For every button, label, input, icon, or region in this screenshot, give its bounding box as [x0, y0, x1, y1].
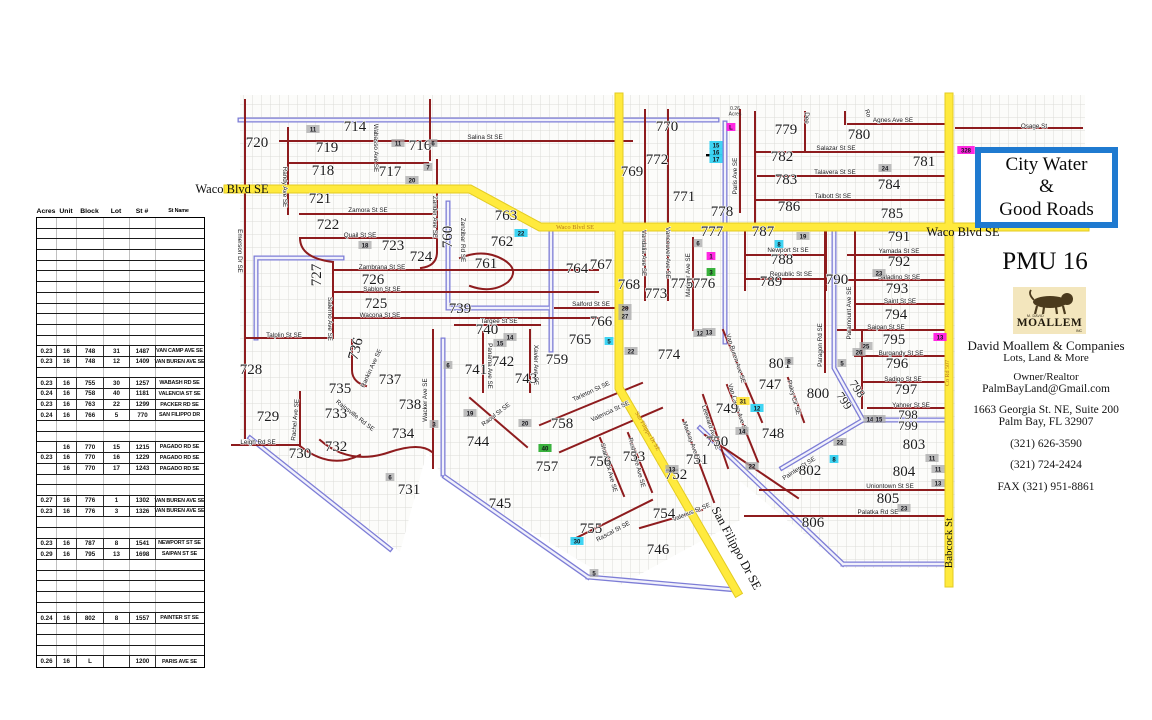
- table-row: [37, 314, 204, 325]
- block-number: 764: [566, 261, 589, 277]
- banner-line2: &: [1039, 176, 1054, 198]
- block-number: 721: [309, 191, 332, 207]
- table-cell: [130, 517, 156, 527]
- table-cell: 0.23: [37, 539, 57, 549]
- table-cell: [156, 528, 203, 538]
- table-cell: [156, 635, 203, 645]
- table-cell: [77, 517, 104, 527]
- table-cell: [104, 368, 130, 378]
- table-row: 0.231677631326VAN BUREN AVE SE: [37, 507, 204, 518]
- lot-table-header: AcresUnitBlockLotSt #St Name: [36, 205, 205, 217]
- email-address: PalmBayLand@Gmail.com: [962, 383, 1130, 395]
- svg-text:30: 30: [574, 540, 581, 546]
- table-cell: 1243: [130, 464, 156, 474]
- table-cell: [130, 560, 156, 570]
- street-label: Zanzibar Rd SE: [459, 218, 466, 262]
- street-label: Paramount Ave SE: [846, 286, 853, 339]
- svg-text:26: 26: [856, 351, 863, 357]
- table-cell: [130, 325, 156, 335]
- table-cell: [77, 646, 104, 656]
- lot-marker: 19: [463, 409, 476, 418]
- lot-marker: 13: [702, 328, 715, 337]
- table-cell: 16: [57, 442, 77, 452]
- block-number: 774: [658, 347, 681, 363]
- table-row: [37, 432, 204, 443]
- lot-marker: 8: [775, 240, 784, 249]
- table-cell: [130, 485, 156, 495]
- lot-marker: 17: [709, 155, 722, 164]
- table-cell: [37, 635, 57, 645]
- table-cell: [156, 475, 203, 485]
- lot-marker: 28: [618, 304, 631, 313]
- table-cell: [156, 261, 203, 271]
- block-number: 804: [893, 464, 916, 480]
- block-number: 802: [799, 463, 822, 479]
- block-number: 806: [802, 515, 825, 531]
- table-row: 16770151215PAGADO RD SE: [37, 442, 204, 453]
- table-cell: SAIPAN ST SE: [156, 549, 203, 559]
- table-cell: 795: [77, 549, 104, 559]
- table-cell: [77, 229, 104, 239]
- table-cell: [104, 282, 130, 292]
- table-cell: [57, 421, 77, 431]
- block-number: 788: [771, 252, 794, 268]
- lot-marker: 11: [931, 465, 944, 474]
- table-row: [37, 229, 204, 240]
- table-cell: 0.24: [37, 389, 57, 399]
- phone-number-1: (321) 626-3590: [962, 438, 1130, 450]
- block-number: 740: [476, 322, 499, 338]
- lot-marker: 7: [424, 163, 433, 172]
- block-number: 753: [623, 449, 646, 465]
- table-cell: [156, 250, 203, 260]
- table-cell: [77, 571, 104, 581]
- table-cell: 0.26: [37, 656, 57, 667]
- table-cell: 0.23: [37, 400, 57, 410]
- block-number: 761: [475, 256, 498, 272]
- table-cell: [130, 229, 156, 239]
- street-label: Leigh Rd SE: [240, 439, 275, 446]
- table-cell: 16: [57, 464, 77, 474]
- lot-marker: 3: [707, 268, 716, 277]
- city-state-zip: Palm Bay, FL 32907: [962, 416, 1130, 428]
- table-cell: 5: [104, 410, 130, 420]
- lot-marker: 1: [707, 252, 716, 261]
- svg-text:11: 11: [395, 142, 402, 148]
- block-number: 776: [693, 276, 716, 292]
- table-cell: 787: [77, 539, 104, 549]
- table-row: 0.231678781541NEWPORT ST SE: [37, 539, 204, 550]
- table-cell: 16: [57, 410, 77, 420]
- lot-marker: 5: [590, 569, 599, 578]
- table-cell: [77, 314, 104, 324]
- table-cell: 770: [77, 464, 104, 474]
- table-row: [37, 218, 204, 229]
- city-water-banner: City Water & Good Roads: [975, 147, 1118, 228]
- table-cell: [77, 271, 104, 281]
- table-cell: [156, 592, 203, 602]
- svg-text:20: 20: [409, 179, 416, 185]
- table-cell: [130, 239, 156, 249]
- table-cell: [156, 646, 203, 656]
- table-cell: [37, 592, 57, 602]
- table-cell: [37, 517, 57, 527]
- table-cell: [156, 560, 203, 570]
- street-label: Paris Ave SE: [732, 158, 739, 195]
- block-number: 729: [257, 409, 280, 425]
- block-number: 785: [881, 206, 904, 222]
- lot-marker: L: [727, 123, 736, 132]
- table-cell: [104, 432, 130, 442]
- table-cell: 16: [57, 400, 77, 410]
- table-cell: [130, 592, 156, 602]
- table-cell: 16: [104, 453, 130, 463]
- table-cell: [77, 475, 104, 485]
- table-row: [37, 282, 204, 293]
- street-label: Salford St SE: [572, 301, 610, 308]
- block-number: 762: [491, 234, 514, 250]
- lot-marker: 328: [957, 146, 974, 155]
- table-cell: VAN CAMP AVE SE: [156, 346, 203, 356]
- table-cell: [156, 603, 203, 613]
- street-label: Wacker Ave SE: [422, 378, 429, 421]
- svg-text:22: 22: [837, 441, 844, 447]
- table-cell: [77, 592, 104, 602]
- table-row: [37, 421, 204, 432]
- table-cell: [104, 646, 130, 656]
- table-cell: 16: [57, 613, 77, 623]
- table-cell: [57, 571, 77, 581]
- street-label: Talplin St SE: [266, 332, 302, 339]
- block-number: 786: [778, 199, 801, 215]
- table-cell: [37, 218, 57, 228]
- table-cell: [156, 218, 203, 228]
- street-label: Uniontown St SE: [866, 483, 914, 490]
- block-number: 742: [492, 354, 515, 370]
- lot-marker: 22: [833, 438, 846, 447]
- table-cell: [57, 293, 77, 303]
- block-number: 770: [656, 119, 679, 135]
- lot-marker: 40: [538, 444, 551, 453]
- table-cell: [104, 271, 130, 281]
- table-cell: [57, 368, 77, 378]
- block-number: 766: [590, 314, 613, 330]
- table-cell: [156, 336, 203, 346]
- street-label: Osage St: [1021, 123, 1048, 130]
- table-cell: 0.23: [37, 346, 57, 356]
- block-number: 771: [673, 189, 696, 205]
- table-row: [37, 624, 204, 635]
- table-row: 16770171243PAGADO RD SE: [37, 464, 204, 475]
- table-cell: 16: [57, 453, 77, 463]
- table-cell: [77, 581, 104, 591]
- block-number: 733: [325, 406, 348, 422]
- table-cell: 763: [77, 400, 104, 410]
- table-cell: [156, 517, 203, 527]
- table-row: [37, 603, 204, 614]
- lot-marker: 11: [391, 139, 404, 148]
- lot-marker: 5: [605, 337, 614, 346]
- block-number: 720: [246, 135, 269, 151]
- table-cell: [104, 571, 130, 581]
- svg-text:40: 40: [542, 447, 549, 453]
- table-cell: [104, 239, 130, 249]
- table-row: [37, 304, 204, 315]
- street-label: Zambrana St SE: [359, 264, 406, 271]
- table-row: [37, 581, 204, 592]
- table-cell: [130, 475, 156, 485]
- table-cell: [37, 325, 57, 335]
- table-cell: [37, 271, 57, 281]
- table-cell: 1257: [130, 378, 156, 388]
- street-label: Zamora St SE: [348, 207, 388, 214]
- street-label: Randy Ave SE: [281, 167, 288, 208]
- table-cell: [104, 250, 130, 260]
- table-cell: [37, 293, 57, 303]
- block-number: 744: [467, 434, 490, 450]
- table-cell: [37, 368, 57, 378]
- block-number: 758: [551, 416, 574, 432]
- block-number: 765: [569, 332, 592, 348]
- table-cell: [130, 581, 156, 591]
- table-cell: PARIS AVE SE: [156, 656, 203, 667]
- table-cell: 1326: [130, 507, 156, 517]
- table-cell: [130, 646, 156, 656]
- table-cell: 13: [104, 549, 130, 559]
- table-cell: [104, 293, 130, 303]
- road-label: Co Rd 507: [945, 360, 951, 386]
- road-label: Waco Blvd SE: [556, 224, 594, 231]
- svg-text:27: 27: [622, 315, 629, 321]
- table-cell: 1698: [130, 549, 156, 559]
- block-number: 718: [312, 163, 335, 179]
- table-cell: [77, 624, 104, 634]
- table-cell: [77, 368, 104, 378]
- table-cell: 16: [57, 389, 77, 399]
- lot-marker: 8: [785, 357, 794, 366]
- block-number: 790: [826, 272, 849, 288]
- table-cell: [37, 250, 57, 260]
- table-cell: [104, 560, 130, 570]
- table-cell: [57, 282, 77, 292]
- column-header: Unit: [56, 208, 76, 215]
- table-cell: [130, 368, 156, 378]
- street-label: Saint St SE: [884, 298, 916, 305]
- block-number: 784: [878, 177, 901, 193]
- column-header: St #: [129, 208, 155, 215]
- svg-text:20: 20: [522, 422, 529, 428]
- table-row: [37, 271, 204, 282]
- table-cell: [77, 218, 104, 228]
- table-cell: WABASH RD SE: [156, 378, 203, 388]
- block-number: 768: [618, 277, 641, 293]
- table-cell: [156, 571, 203, 581]
- table-cell: [130, 282, 156, 292]
- table-cell: [77, 432, 104, 442]
- table-cell: [57, 336, 77, 346]
- logo-inc-text: INC: [1076, 329, 1082, 333]
- lot-marker: 22: [514, 229, 527, 238]
- block-number: 717: [379, 164, 402, 180]
- svg-text:15: 15: [497, 342, 504, 348]
- table-cell: [37, 528, 57, 538]
- table-cell: 16: [57, 346, 77, 356]
- table-cell: [37, 432, 57, 442]
- table-row: 0.2316748311487VAN CAMP AVE SE: [37, 346, 204, 357]
- table-cell: [104, 314, 130, 324]
- table-cell: 16: [57, 496, 77, 506]
- table-row: [37, 261, 204, 272]
- lot-marker: 27: [618, 312, 631, 321]
- svg-text:18: 18: [362, 244, 369, 250]
- table-cell: [37, 560, 57, 570]
- lot-marker: 3: [430, 420, 439, 429]
- table-cell: [57, 239, 77, 249]
- table-cell: [130, 314, 156, 324]
- table-cell: [104, 261, 130, 271]
- table-cell: PAGADO RD SE: [156, 442, 203, 452]
- table-cell: [77, 325, 104, 335]
- table-cell: [37, 624, 57, 634]
- block-number: 760: [440, 226, 456, 249]
- street-label: Dee: [803, 112, 810, 124]
- table-cell: [57, 314, 77, 324]
- table-cell: [57, 592, 77, 602]
- table-cell: [156, 432, 203, 442]
- svg-text:15: 15: [876, 418, 883, 424]
- table-cell: [37, 646, 57, 656]
- block-number: 754: [653, 506, 676, 522]
- table-cell: [37, 571, 57, 581]
- table-cell: [104, 475, 130, 485]
- lot-table: AcresUnitBlockLotSt #St Name 0.231674831…: [36, 205, 205, 668]
- lot-marker: 11: [306, 125, 319, 134]
- svg-text:14: 14: [739, 430, 746, 436]
- block-number: 722: [317, 217, 340, 233]
- lot-marker: 26: [852, 348, 865, 357]
- table-cell: 3: [104, 507, 130, 517]
- street-label: Vandalia Ave SE: [640, 230, 647, 276]
- table-cell: 31: [104, 346, 130, 356]
- road-label: Waco Blvd SE: [195, 182, 269, 196]
- lot-marker: 6: [386, 473, 395, 482]
- table-cell: [57, 325, 77, 335]
- block-number: 732: [325, 439, 348, 455]
- table-cell: [57, 271, 77, 281]
- lot-marker: 11: [925, 454, 938, 463]
- svg-text:31: 31: [740, 400, 747, 406]
- table-cell: [156, 314, 203, 324]
- street-label: Talavera St SE: [814, 169, 856, 176]
- table-cell: [57, 581, 77, 591]
- table-row: [37, 528, 204, 539]
- table-cell: [130, 261, 156, 271]
- table-cell: 16: [57, 539, 77, 549]
- banner-line3: Good Roads: [999, 199, 1093, 221]
- table-row: 0.241680281557PAINTER ST SE: [37, 613, 204, 624]
- table-cell: [57, 304, 77, 314]
- block-number: 730: [289, 446, 312, 462]
- table-cell: [104, 229, 130, 239]
- block-number: 755: [580, 521, 603, 537]
- lot-marker: 8: [830, 455, 839, 464]
- table-cell: [77, 421, 104, 431]
- table-cell: [57, 635, 77, 645]
- table-cell: [57, 475, 77, 485]
- table-cell: 0.23: [37, 357, 57, 367]
- table-row: 0.24167665770SAN FILIPPO DR: [37, 410, 204, 421]
- table-row: [37, 635, 204, 646]
- block-number: 747: [759, 377, 782, 393]
- street-label: Emerson Dr SE: [236, 229, 243, 273]
- table-cell: [130, 571, 156, 581]
- block-number: 789: [760, 274, 783, 290]
- block-number: 803: [903, 437, 926, 453]
- block-number: 724: [410, 249, 433, 265]
- lion-icon: [1013, 287, 1086, 315]
- table-cell: 0.23: [37, 378, 57, 388]
- table-cell: [156, 293, 203, 303]
- company-tagline: Lots, Land & More: [962, 352, 1130, 364]
- lot-marker: 23: [897, 504, 910, 513]
- table-cell: [57, 229, 77, 239]
- lot-marker: 20: [405, 176, 418, 185]
- table-cell: [77, 282, 104, 292]
- table-cell: [156, 581, 203, 591]
- table-cell: [130, 603, 156, 613]
- table-cell: [37, 304, 57, 314]
- block-number: 726: [362, 272, 385, 288]
- table-cell: [104, 517, 130, 527]
- block-number: 728: [240, 362, 263, 378]
- svg-text:23: 23: [901, 507, 908, 513]
- table-cell: 802: [77, 613, 104, 623]
- table-cell: PACKER RD SE: [156, 400, 203, 410]
- table-cell: 0.24: [37, 410, 57, 420]
- svg-text:11: 11: [310, 128, 317, 134]
- svg-text:13: 13: [669, 468, 676, 474]
- phone-number-2: (321) 724-2424: [962, 459, 1130, 471]
- block-number: 773: [645, 286, 668, 302]
- table-cell: 0.23: [37, 507, 57, 517]
- street-label: Salazar St SE: [816, 145, 855, 152]
- table-cell: 770: [77, 453, 104, 463]
- table-cell: 776: [77, 507, 104, 517]
- svg-text:24: 24: [882, 167, 889, 173]
- block-number: 796: [886, 356, 909, 372]
- lot-marker: 30: [570, 537, 583, 546]
- table-cell: L: [77, 656, 104, 667]
- table-cell: [130, 304, 156, 314]
- table-cell: [104, 218, 130, 228]
- lot-marker: 12: [750, 404, 763, 413]
- table-cell: [156, 304, 203, 314]
- block-number: 799: [898, 418, 918, 433]
- column-header: Lot: [103, 208, 129, 215]
- table-cell: 758: [77, 389, 104, 399]
- table-cell: 770: [130, 410, 156, 420]
- block-number: 779: [775, 122, 798, 138]
- table-cell: 748: [77, 357, 104, 367]
- table-cell: 30: [104, 378, 130, 388]
- lot-marker: 5: [838, 359, 847, 368]
- table-cell: [57, 646, 77, 656]
- table-row: 0.2316748121409VAN BUREN AVE SE: [37, 357, 204, 368]
- table-row: [37, 485, 204, 496]
- pmu-label: PMU 16: [985, 248, 1105, 276]
- block-number: 783: [775, 172, 798, 188]
- table-cell: [57, 261, 77, 271]
